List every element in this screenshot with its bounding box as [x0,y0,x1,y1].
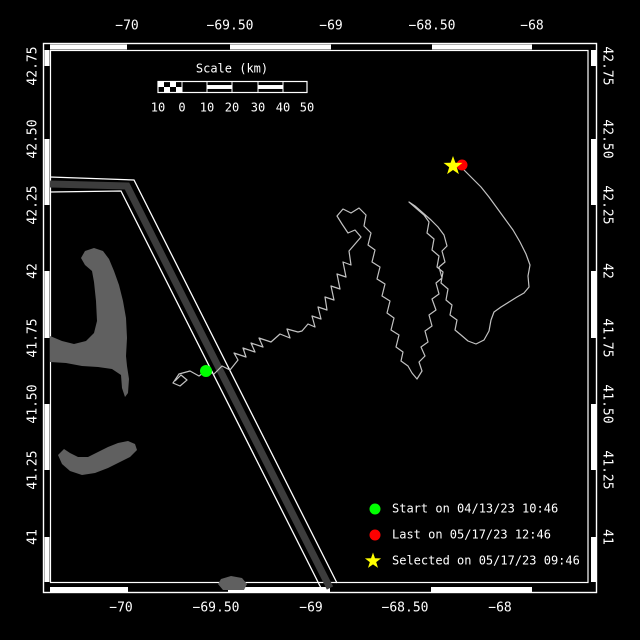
legend-last-dot-icon [370,530,381,541]
axis-label-right: 42 [600,263,615,279]
axis-label-right: 42.25 [600,185,615,224]
scale-bar-stripe [207,85,232,89]
drifter-track [173,165,530,386]
frame-zebra-segment [45,139,50,205]
axis-label-right: 42.50 [600,119,615,158]
scale-bar-checker-cell [176,87,182,93]
scale-bar-number: 0 [178,101,185,115]
scale-bar-checker-cell [158,82,164,88]
frame-zebra-segment [432,45,532,50]
scale-bar [158,82,307,93]
frame-zebra-segment [591,50,596,66]
frame-zebra-segment [50,45,127,50]
axis-label-bottom: −68 [488,601,511,616]
scale-bar-number: 20 [225,101,239,115]
frame-zebra-segment [591,404,596,470]
frame-zebra-segment [45,271,50,338]
axis-label-left: 42 [26,263,41,279]
axis-label-top: −69 [319,19,342,34]
scale-bar-number: 40 [276,101,290,115]
axis-label-left: 41.25 [26,450,41,489]
scale-bar-title: Scale (km) [196,62,268,76]
map-content [50,156,530,590]
start-marker [200,365,212,377]
frame-zebra-segment [45,537,50,582]
axis-label-right: 41.25 [600,450,615,489]
land-polygon [218,576,247,590]
legend-label: Last on 05/17/23 12:46 [392,528,551,542]
axis-label-left: 41 [26,529,41,545]
scale-bar-checker-cell [164,87,170,93]
axis-label-bottom: −69.50 [193,601,240,616]
axis-label-right: 41 [600,529,615,545]
axis-label-left: 42.25 [26,185,41,224]
axis-label-bottom: −68.50 [382,601,429,616]
legend-start-dot-icon [370,504,381,515]
map-plot: Scale (km)1001020304050−70−69.50−69−68.5… [0,0,640,640]
scale-bar-number: 10 [151,101,165,115]
scale-bar-stripe [258,85,283,89]
axis-label-left: 41.50 [26,384,41,423]
axis-label-top: −68 [520,19,543,34]
axis-label-right: 41.75 [600,318,615,357]
frame-zebra-segment [45,404,50,470]
frame-zebra-segment [50,587,128,592]
axis-label-bottom: −70 [109,601,132,616]
axis-label-right: 41.50 [600,384,615,423]
shipping-lane-band [50,184,330,588]
axis-label-top: −70 [115,19,138,34]
axis-label-bottom: −69 [299,601,322,616]
frame-zebra-segment [230,45,331,50]
legend-label: Start on 04/13/23 10:46 [392,502,558,516]
axis-label-left: 41.75 [26,318,41,357]
frame-zebra-segment [591,139,596,205]
map-canvas: Scale (km)1001020304050−70−69.50−69−68.5… [0,0,640,640]
axis-label-top: −68.50 [409,19,456,34]
frame-zebra-segment [591,537,596,582]
axis-label-top: −69.50 [207,19,254,34]
scale-bar-number: 30 [251,101,265,115]
scale-bar-number: 50 [300,101,314,115]
axis-label-left: 42.75 [26,46,41,85]
land-polygon [58,441,137,475]
frame-zebra-segment [45,50,50,66]
axis-label-left: 42.50 [26,119,41,158]
scale-bar-number: 10 [200,101,214,115]
legend-selected-star-icon [365,553,381,568]
land-polygon [50,248,129,397]
frame-zebra-segment [431,587,532,592]
legend-label: Selected on 05/17/23 09:46 [392,554,580,568]
frame-zebra-segment [591,271,596,338]
scale-bar-checker-cell [170,82,176,88]
axis-label-right: 42.75 [600,46,615,85]
